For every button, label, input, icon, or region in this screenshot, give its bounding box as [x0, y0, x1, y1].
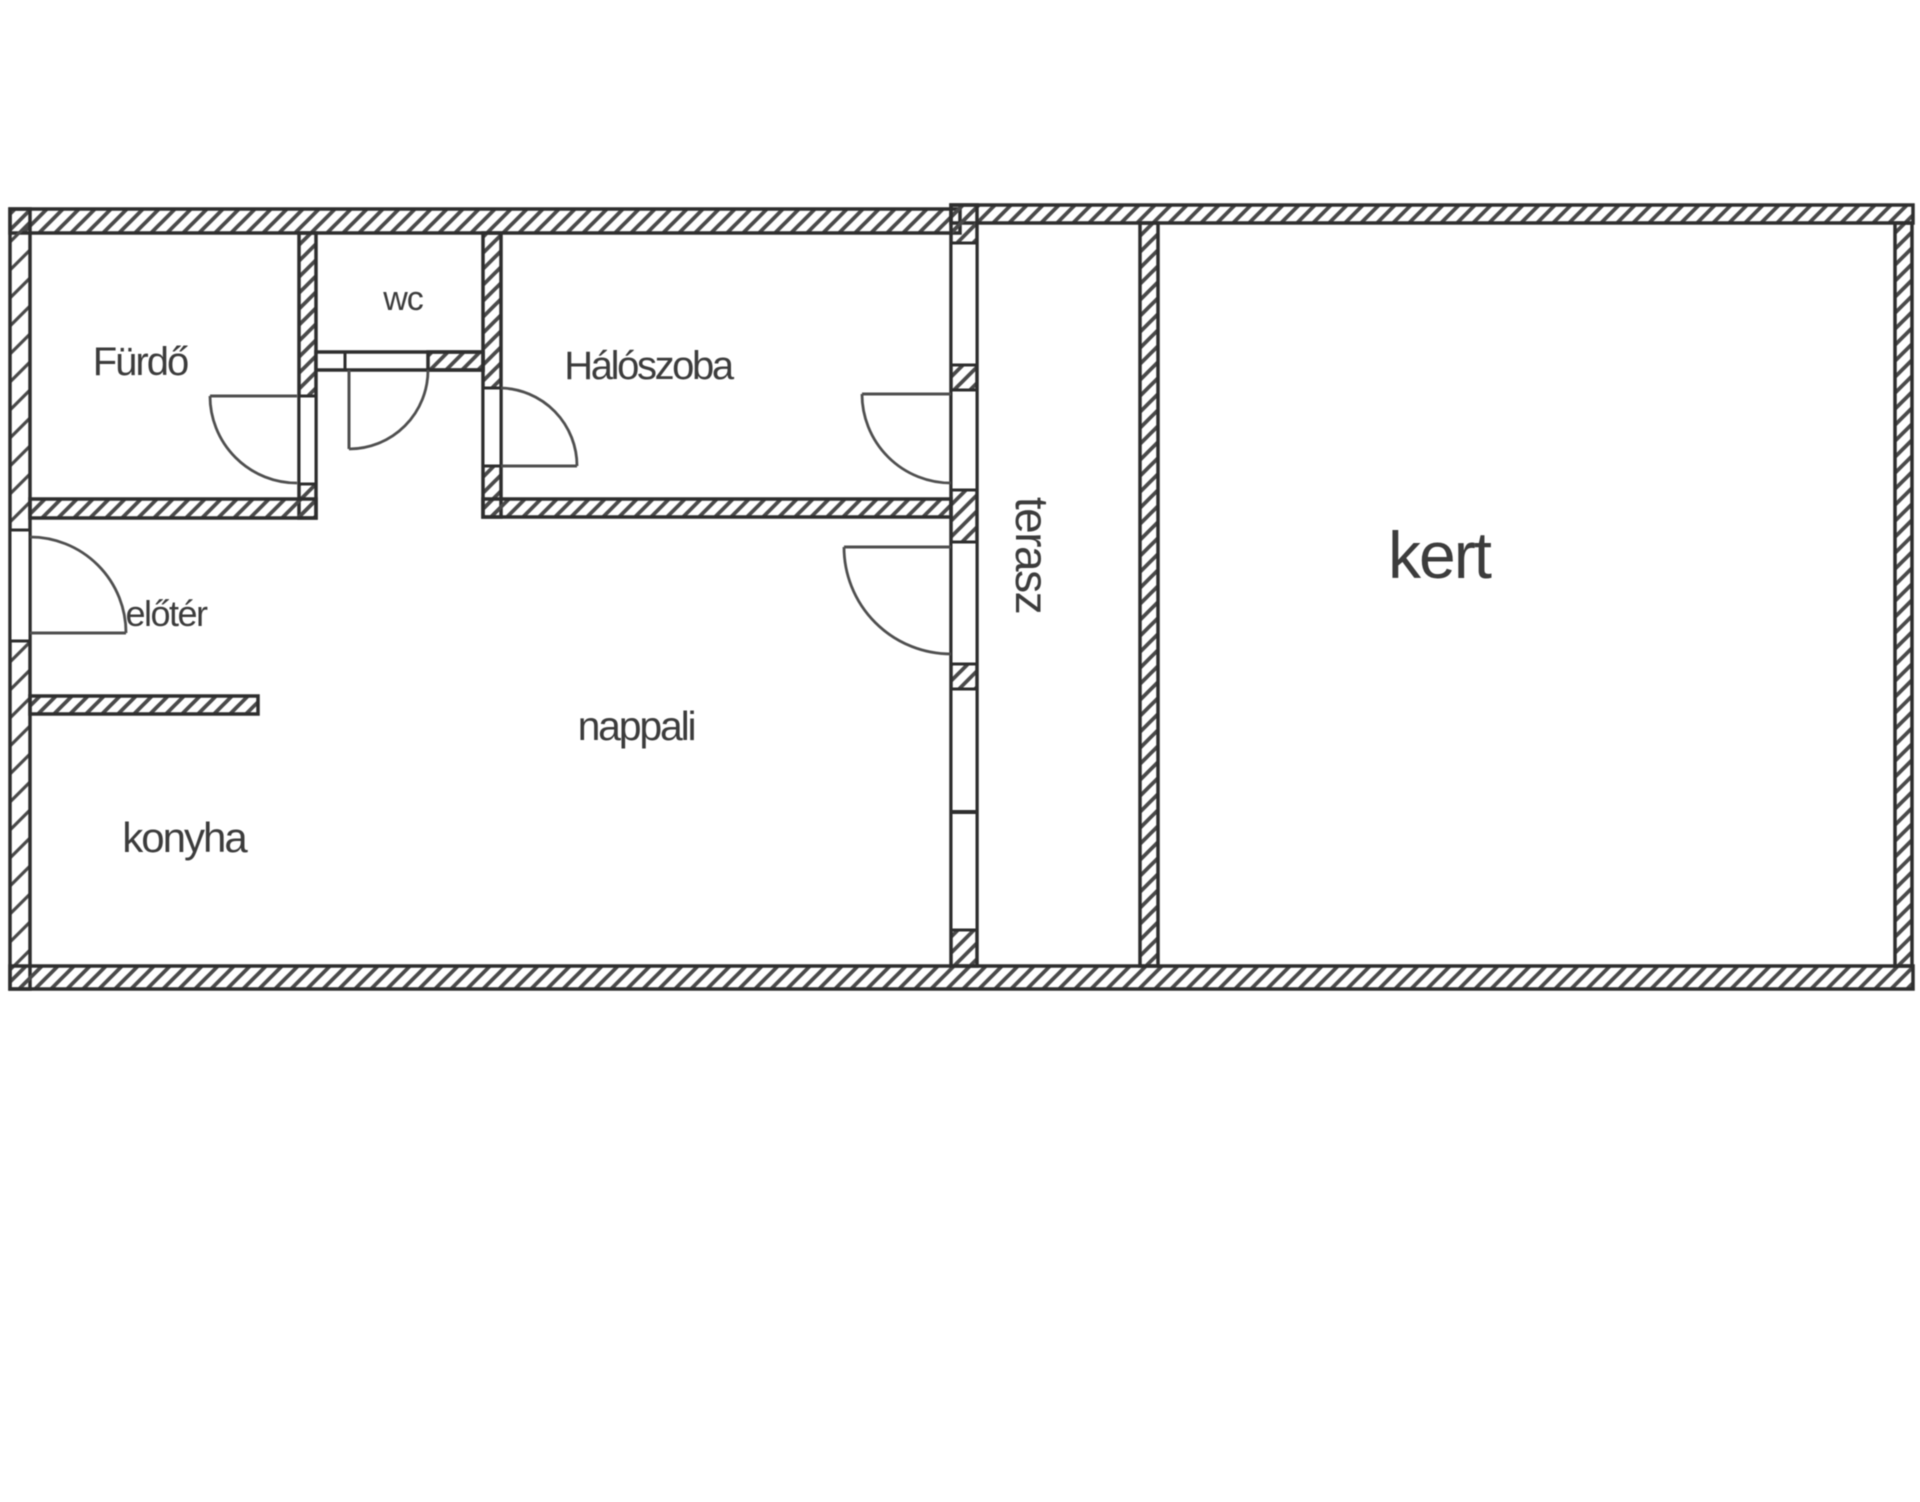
svg-text:Fürdő: Fürdő: [93, 340, 188, 384]
svg-text:konyha: konyha: [122, 814, 248, 861]
svg-text:Hálószoba: Hálószoba: [564, 344, 735, 388]
svg-text:előtér: előtér: [125, 593, 208, 634]
svg-text:wc: wc: [382, 280, 424, 318]
svg-text:nappali: nappali: [578, 703, 695, 749]
svg-text:kert: kert: [1388, 518, 1492, 592]
svg-text:terasz: terasz: [1006, 497, 1058, 613]
